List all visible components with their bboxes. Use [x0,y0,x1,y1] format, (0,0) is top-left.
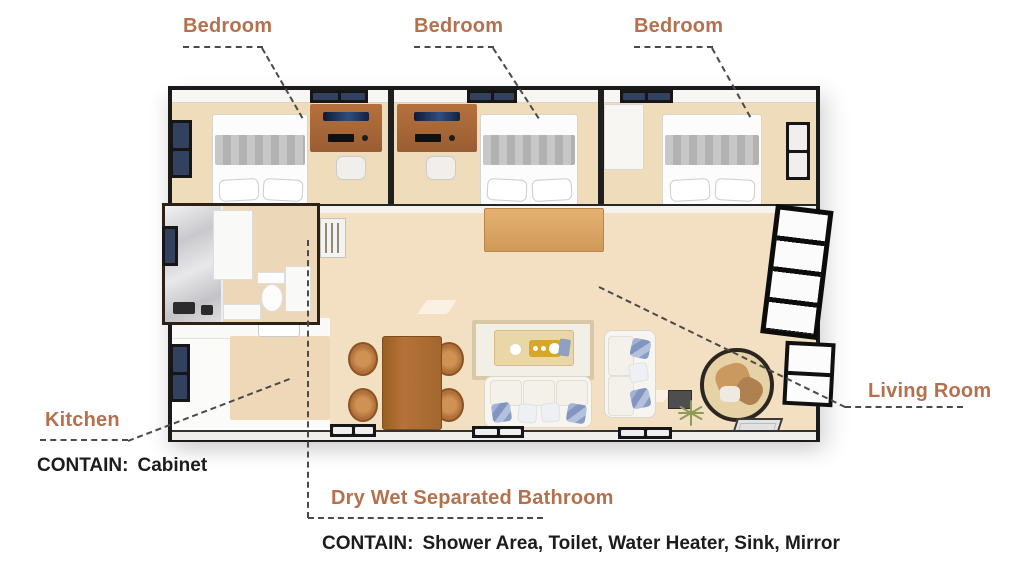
bedrooms-band [172,90,816,206]
contain-prefix: CONTAIN: [322,533,413,554]
mouse-icon [362,135,368,141]
window-icon [170,120,192,178]
contain-prefix: CONTAIN: [37,455,128,476]
pillow [486,178,527,202]
window-icon [472,426,524,438]
blanket [215,135,305,165]
pillow [669,178,710,202]
bed [212,114,308,206]
leader-bedroom-3 [634,46,713,48]
kitchen-contain-line: CONTAIN:Cabinet [37,455,207,477]
blanket [665,135,759,165]
wardrobe [604,104,644,170]
monitor-icon [414,112,460,121]
bathroom-area [162,203,320,325]
cup [541,346,546,351]
desk [310,104,382,152]
pillow [540,402,561,423]
window-icon [467,90,517,103]
leader-bathroom [307,240,309,518]
bedroom-1-label: Bedroom [183,15,272,38]
shower-fixture [201,305,213,315]
window-icon [330,424,376,437]
pillow [566,403,588,425]
leader-bedroom-2 [414,46,494,48]
toilet [257,272,285,284]
leader-living-room [845,406,963,408]
kitchen-floor [230,336,330,420]
blanket [483,135,575,165]
tray [529,340,561,357]
monitor-icon [323,112,369,121]
bathroom-cabinet [213,210,253,280]
sofa [484,376,592,428]
desk [397,104,477,152]
wall-cabinet [484,208,604,252]
window-icon [310,90,368,103]
leader-bedroom-1 [183,46,263,48]
kitchen-label: Kitchen [45,409,120,432]
mouse-icon [449,135,455,141]
desk-chair [336,156,366,180]
bed [662,114,762,206]
keyboard-icon [415,134,441,142]
sofa-cushion [556,380,588,406]
desk-chair [426,156,456,180]
pillow [517,403,538,424]
dining-table [382,336,442,430]
shower-fixture [173,302,195,314]
chair-cushion [720,386,740,402]
wall-divider [388,90,394,206]
bathroom-contain-line: CONTAIN:Shower Area, Toilet, Water Heate… [322,533,840,555]
dining-chair [348,342,378,376]
bed [480,114,578,206]
pillow [629,337,652,360]
bedroom-2-label: Bedroom [414,15,503,38]
water-heater-vent [320,218,346,258]
pillow [714,178,755,202]
living-room-label: Living Room [868,380,991,403]
toilet [261,284,283,312]
pillow [491,402,512,423]
pillow [628,362,649,383]
leader-kitchen [40,439,128,441]
floor-plan-figure: Bedroom Bedroom Bedroom Kitchen Dry Wet … [0,0,1020,576]
window-icon [162,226,178,266]
cup [533,346,538,351]
pillow [629,387,652,410]
pillow [262,178,303,202]
window-icon [170,344,190,402]
window-icon [786,122,810,180]
dining-chair [348,388,378,422]
bathroom-sink [223,304,261,320]
plate [509,343,522,356]
sofa [604,330,656,418]
window-icon [618,427,672,439]
contain-items: Cabinet [137,455,207,476]
coffee-table [494,330,574,366]
hanging-chair [700,348,774,422]
bathroom-label: Dry Wet Separated Bathroom [331,487,614,510]
contain-items: Shower Area, Toilet, Water Heater, Sink,… [422,533,839,554]
bedroom-3-label: Bedroom [634,15,723,38]
window-icon [620,90,673,103]
pillow [531,178,572,202]
keyboard-icon [328,134,354,142]
leader-bathroom [308,517,543,519]
pillow [218,178,259,202]
napkin [558,338,571,356]
